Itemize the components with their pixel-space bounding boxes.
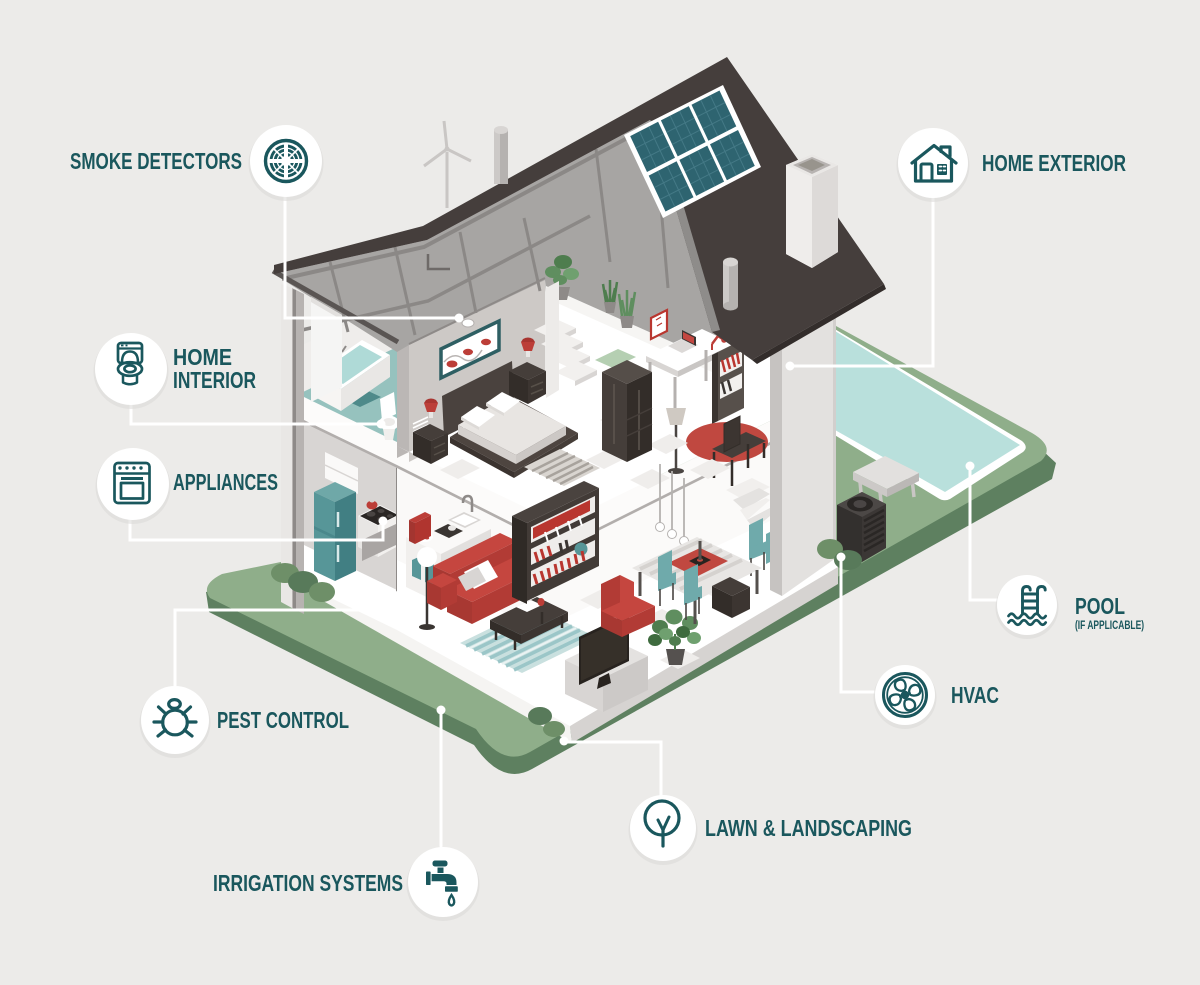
svg-text:PEST CONTROL: PEST CONTROL [217,707,349,733]
svg-text:LAWN & LANDSCAPING: LAWN & LANDSCAPING [705,815,912,841]
svg-text:APPLIANCES: APPLIANCES [173,469,278,495]
svg-text:POOL: POOL [1075,593,1125,619]
svg-text:HVAC: HVAC [951,682,999,708]
svg-text:SMOKE DETECTORS: SMOKE DETECTORS [70,148,242,174]
svg-text:(IF APPLICABLE): (IF APPLICABLE) [1075,618,1144,632]
svg-text:HOME EXTERIOR: HOME EXTERIOR [982,150,1126,176]
svg-text:IRRIGATION SYSTEMS: IRRIGATION SYSTEMS [213,870,403,896]
svg-text:INTERIOR: INTERIOR [173,367,256,393]
